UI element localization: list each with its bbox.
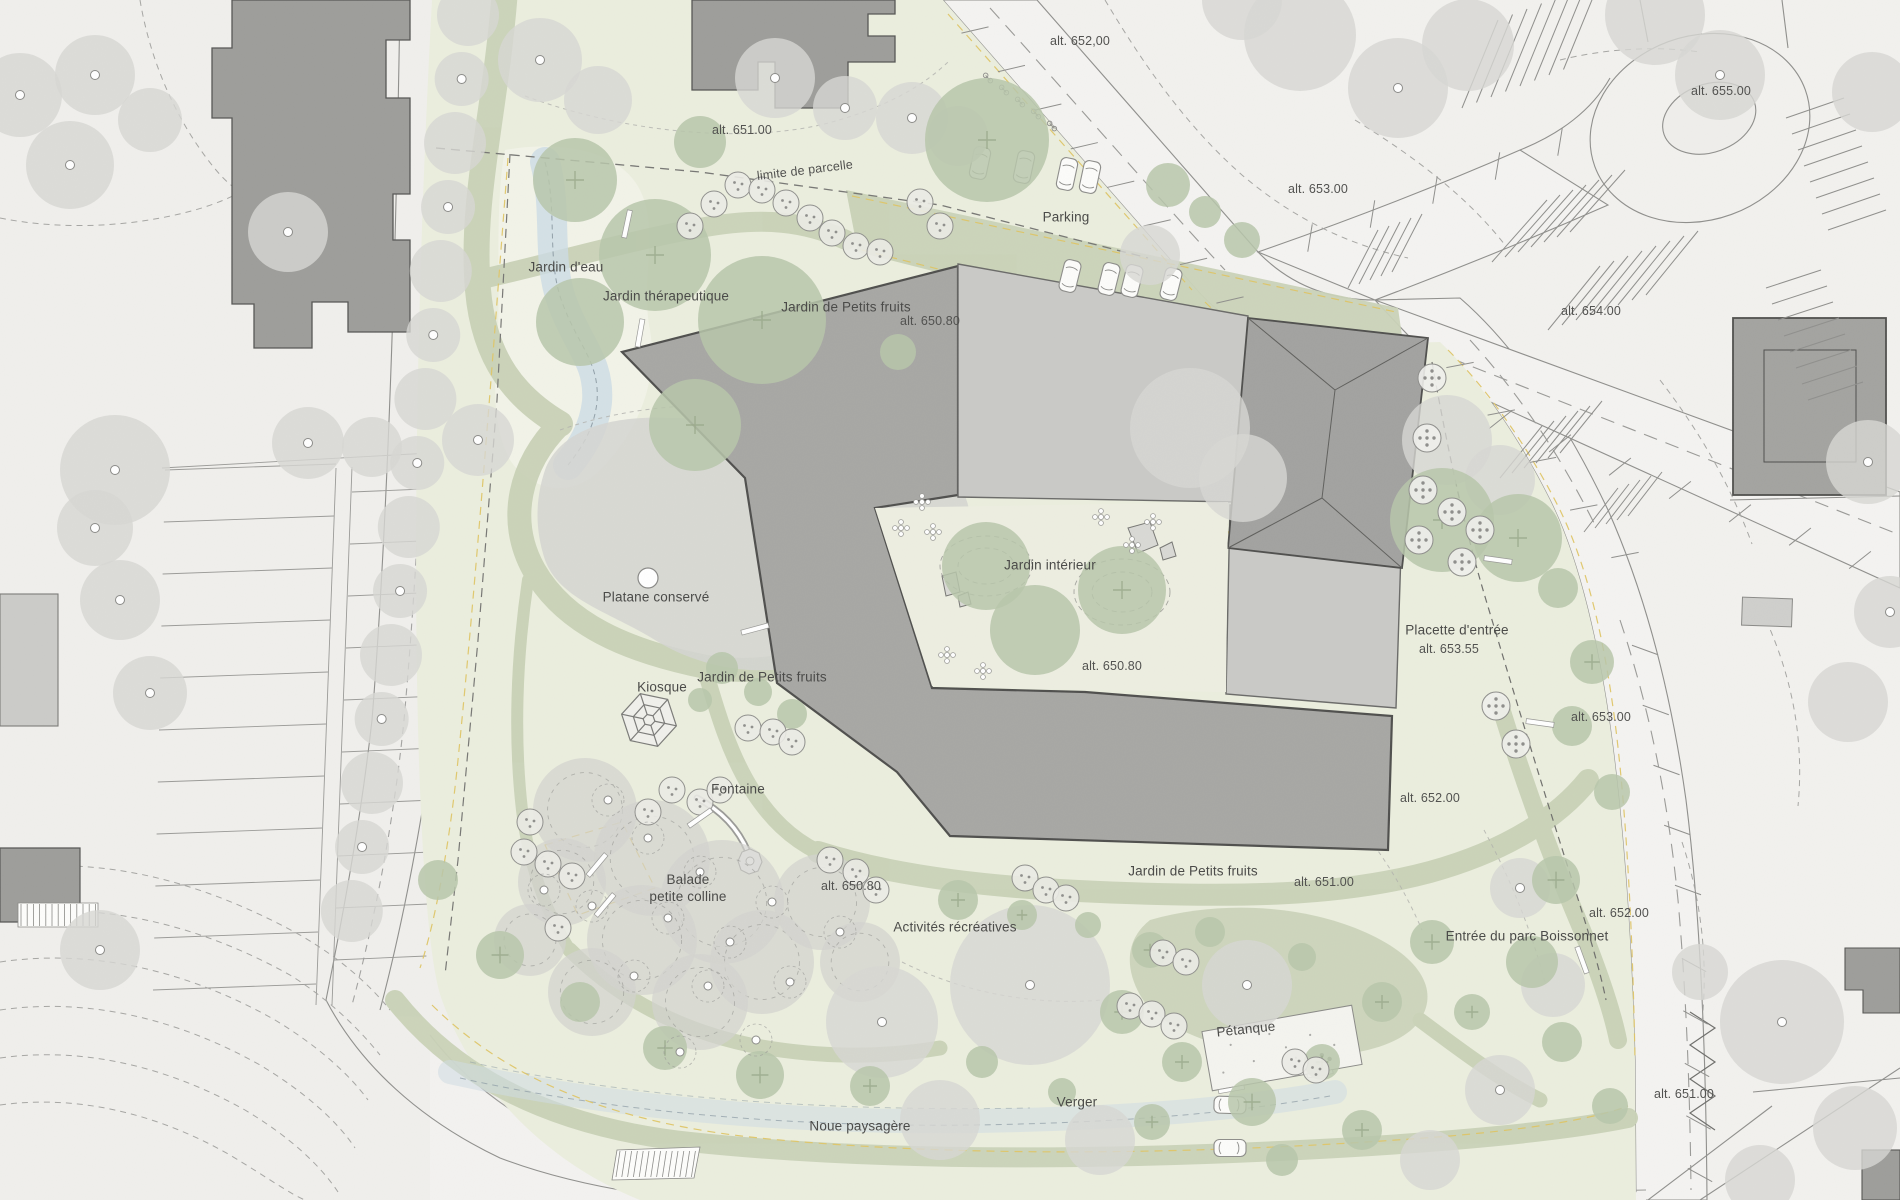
site-plan: alt. 652,00alt. 655.00alt. 651.00limite … — [0, 0, 1900, 1200]
paper-texture — [0, 0, 1900, 1200]
site-plan-canvas — [0, 0, 1900, 1200]
